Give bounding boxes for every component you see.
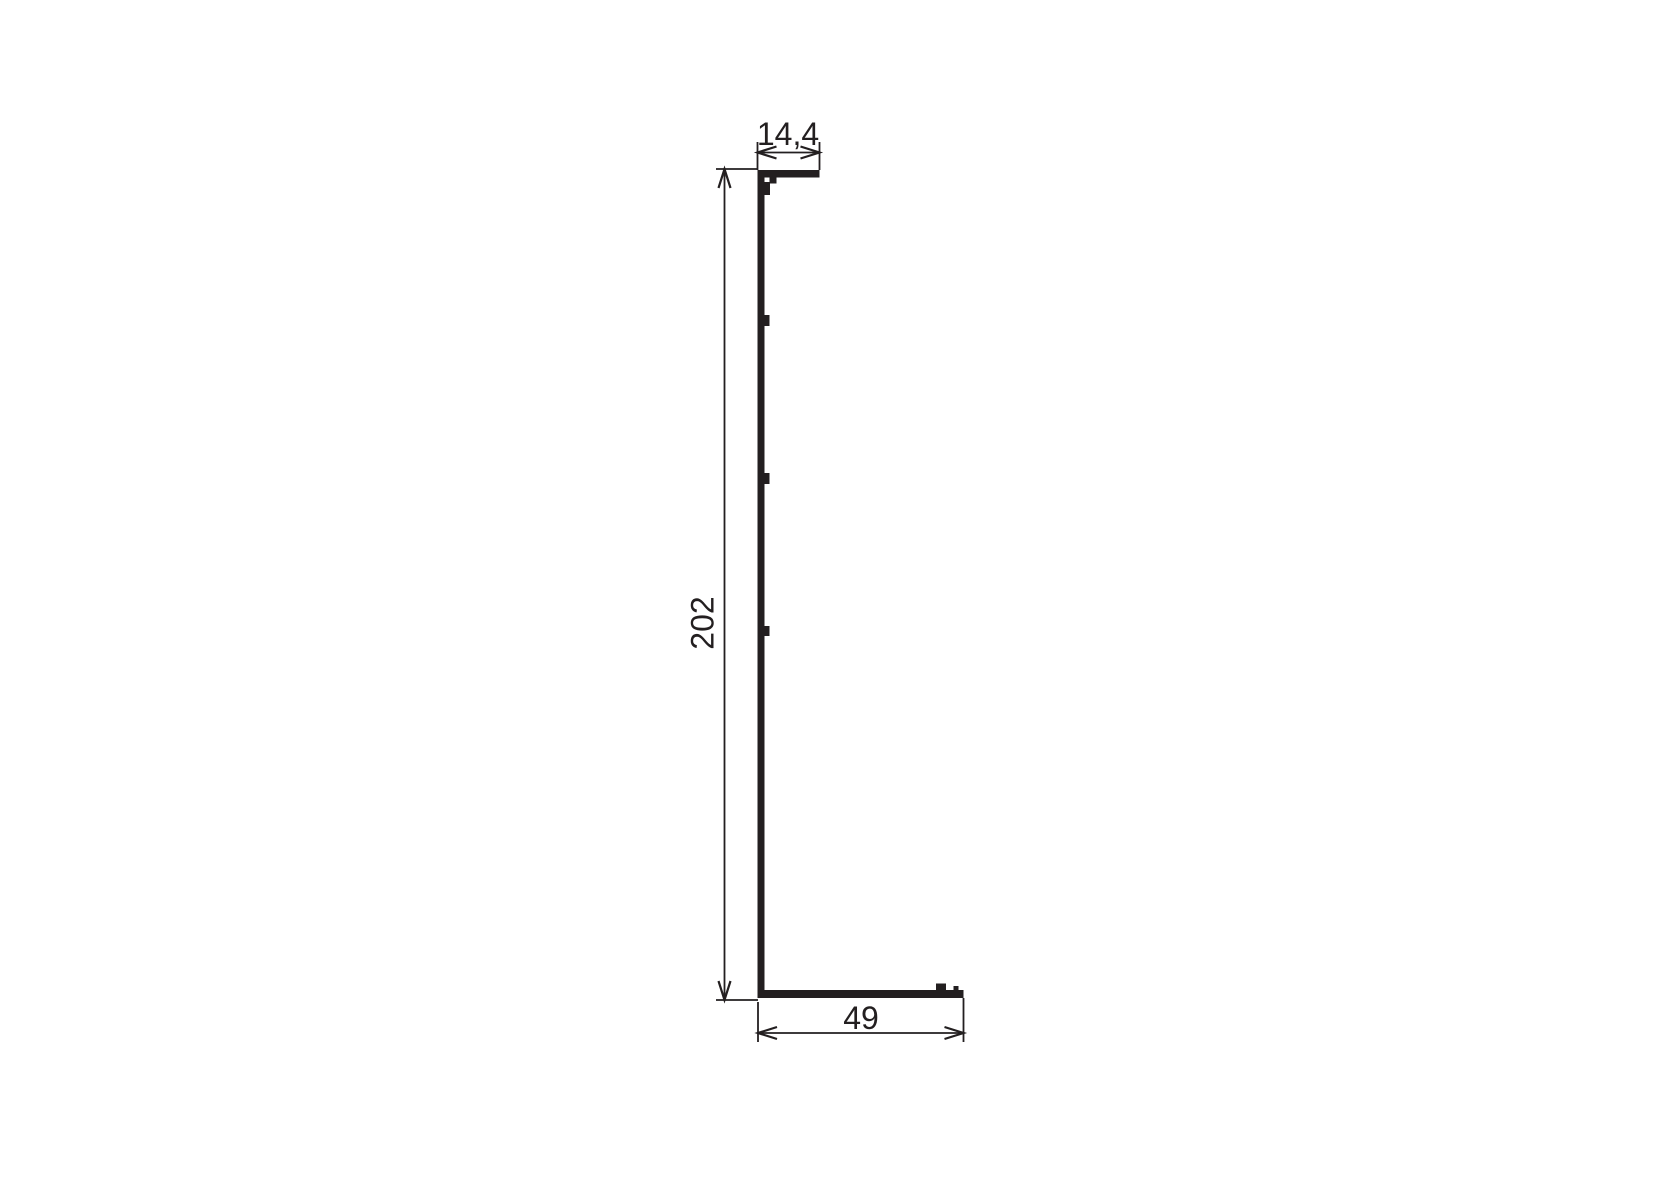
profile-top-flange-lip xyxy=(770,178,777,184)
profile-top-flange xyxy=(758,170,820,178)
profile-web-rib-3 xyxy=(765,626,770,636)
profile-web-tab xyxy=(765,182,771,195)
dimension-label-bottom-width: 49 xyxy=(843,1000,879,1036)
dimension-height: 202 xyxy=(685,169,759,1000)
dimension-top-width: 14,4 xyxy=(757,116,820,170)
profile-bottom-flange xyxy=(758,990,964,998)
dimension-label-top-width: 14,4 xyxy=(757,116,819,152)
profile-web-rib-2 xyxy=(765,473,770,484)
profile-web-rib-1 xyxy=(765,315,770,326)
profile-bottom-flange-stud xyxy=(936,984,946,991)
dimension-bottom-width: 49 xyxy=(758,998,964,1042)
profile-outline xyxy=(758,170,964,998)
profile-bottom-flange-dot xyxy=(954,986,959,991)
profile-web xyxy=(758,170,765,998)
profile-technical-drawing: 14,4 202 49 xyxy=(0,0,1680,1187)
drawing-canvas: 14,4 202 49 xyxy=(0,0,1680,1187)
dimension-label-height: 202 xyxy=(685,596,721,649)
